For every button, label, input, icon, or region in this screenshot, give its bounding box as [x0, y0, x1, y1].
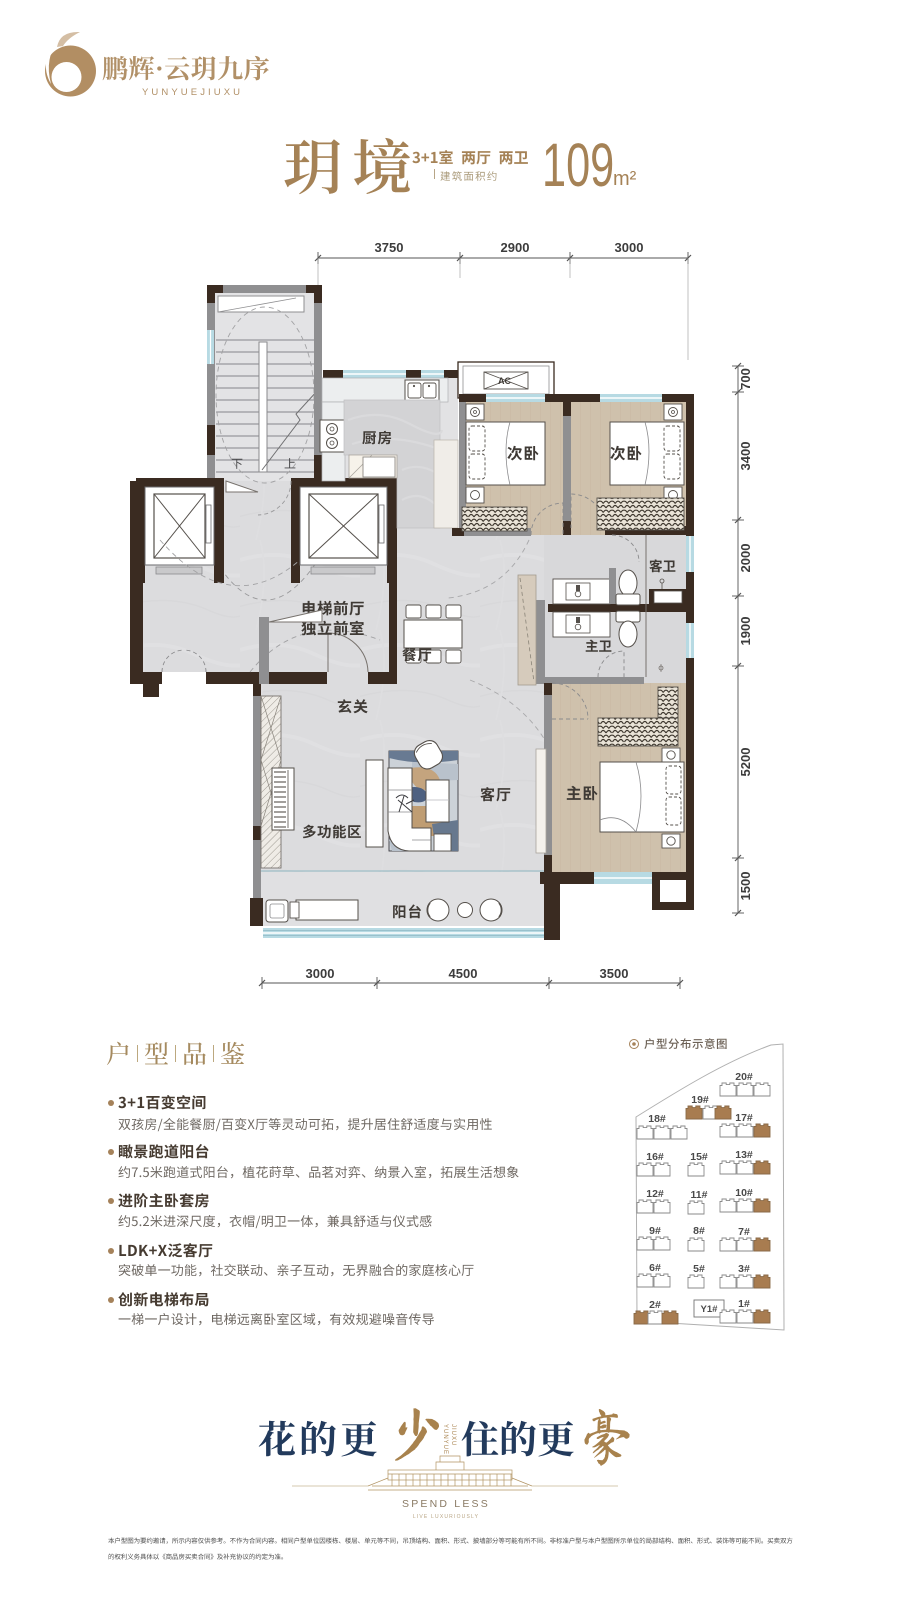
svg-text:2900: 2900 [501, 240, 530, 255]
svg-text:19#: 19# [691, 1094, 709, 1106]
svg-text:4500: 4500 [449, 966, 478, 981]
svg-text:YUNYUEJIUXU: YUNYUEJIUXU [142, 87, 243, 98]
svg-text:17#: 17# [735, 1112, 753, 1124]
svg-text:16#: 16# [646, 1151, 664, 1163]
svg-text:JIUXU: JIUXU [450, 1424, 456, 1446]
svg-text:1900: 1900 [738, 617, 753, 646]
svg-text:LIVE LUXURIOUSLY: LIVE LUXURIOUSLY [413, 1514, 479, 1520]
svg-text:3750: 3750 [375, 240, 404, 255]
svg-text:15#: 15# [690, 1151, 708, 1163]
svg-text:13#: 13# [735, 1149, 753, 1161]
svg-text:700: 700 [738, 368, 753, 390]
svg-text:3000: 3000 [306, 966, 335, 981]
svg-text:SPEND LESS: SPEND LESS [402, 1498, 490, 1510]
svg-text:7#: 7# [738, 1226, 750, 1238]
svg-text:5#: 5# [693, 1263, 705, 1275]
svg-text:1#: 1# [738, 1298, 750, 1310]
svg-text:2#: 2# [649, 1299, 661, 1311]
svg-text:3400: 3400 [738, 442, 753, 471]
svg-text:3#: 3# [738, 1263, 750, 1275]
svg-text:1500: 1500 [738, 872, 753, 901]
svg-text:18#: 18# [648, 1113, 666, 1125]
svg-text:3000: 3000 [615, 240, 644, 255]
svg-text:11#: 11# [691, 1189, 708, 1201]
svg-text:2000: 2000 [738, 544, 753, 573]
svg-text:YUNYUE: YUNYUE [442, 1424, 448, 1455]
svg-text:8#: 8# [693, 1225, 705, 1237]
svg-text:12#: 12# [646, 1188, 664, 1200]
svg-text:6#: 6# [649, 1262, 661, 1274]
svg-text:5200: 5200 [738, 748, 753, 777]
svg-text:Y1#: Y1# [701, 1304, 719, 1315]
svg-text:AC: AC [498, 376, 511, 386]
svg-text:10#: 10# [735, 1187, 753, 1199]
svg-text:9#: 9# [649, 1225, 661, 1237]
svg-text:m²: m² [613, 168, 637, 190]
svg-text:109: 109 [542, 132, 614, 200]
svg-text:20#: 20# [735, 1071, 753, 1083]
svg-text:3500: 3500 [600, 966, 629, 981]
